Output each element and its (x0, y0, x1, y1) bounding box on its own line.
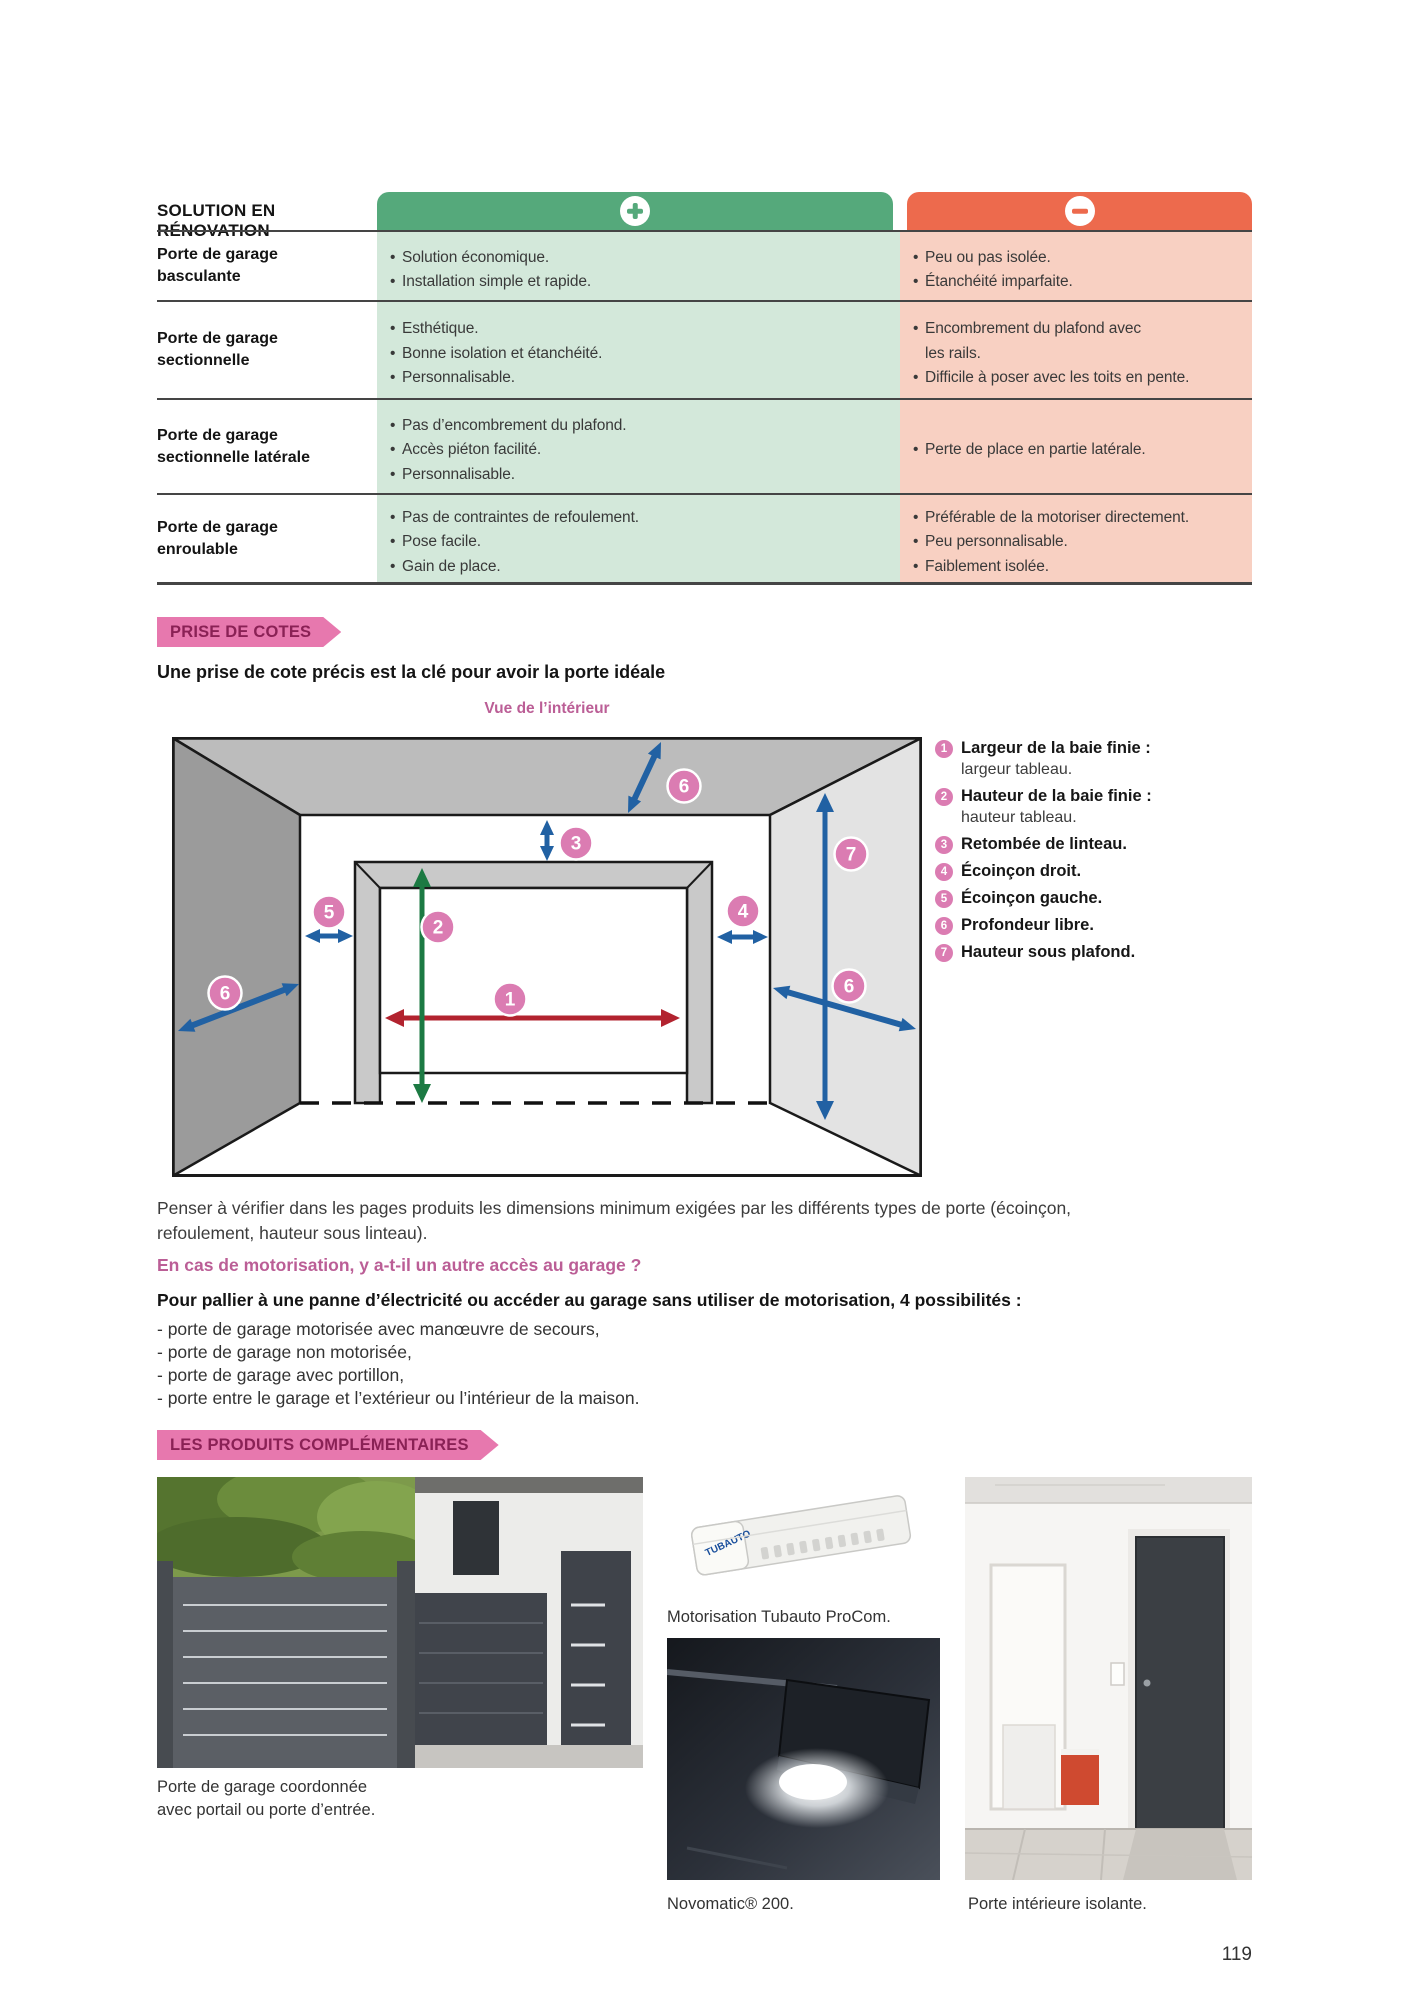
plus-icon (620, 196, 650, 226)
diagram-title: Vue de l’intérieur (172, 700, 922, 718)
caption-tubauto: Motorisation Tubauto ProCom. (667, 1606, 891, 1629)
legend-item: 2 Hauteur de la baie finie :hauteur tabl… (935, 786, 1255, 828)
table-row-label: Porte de garage sectionnelle latérale (157, 398, 377, 493)
svg-text:1: 1 (505, 990, 516, 1011)
marker-1: 1 (494, 983, 527, 1016)
table-cell-pros: Esthétique. Bonne isolation et étanchéit… (377, 300, 900, 398)
table-cell-pros: Pas de contraintes de refoulement. Pose … (377, 493, 900, 585)
list-item: - porte de garage non motorisée, (157, 1341, 639, 1364)
prise-headline: Une prise de cote précis est la clé pour… (157, 662, 665, 683)
marker-4: 4 (727, 895, 760, 928)
pros-tab (377, 192, 893, 230)
marker-2: 2 (422, 911, 455, 944)
red-cabinet (1061, 1753, 1099, 1805)
possibilities-list: - porte de garage motorisée avec manœuvr… (157, 1318, 639, 1410)
legend-item: 3 Retombée de linteau. (935, 834, 1255, 855)
legend-item: 1 Largeur de la baie finie :largeur tabl… (935, 738, 1255, 780)
caption-novomatic: Novomatic® 200. (667, 1893, 794, 1916)
photo-porte-interieure (965, 1477, 1252, 1880)
section-banner-prise-de-cotes: PRISE DE COTES (157, 617, 341, 647)
svg-text:7: 7 (846, 845, 857, 866)
marker-7: 7 (835, 838, 868, 871)
garage-door (415, 1593, 547, 1745)
legend-item: 4 Écoinçon droit. (935, 861, 1255, 882)
marker-3: 3 (560, 827, 593, 860)
svg-text:6: 6 (844, 977, 855, 998)
list-item: - porte entre le garage et l’extérieur o… (157, 1387, 639, 1410)
marker-6-ceiling: 6 (668, 770, 701, 803)
photo-novomatic (667, 1638, 940, 1880)
table-cell-pros: Pas d’encombrement du plafond. Accès pié… (377, 398, 900, 493)
table-cell-cons: Encombrement du plafond avec les rails. … (900, 300, 1252, 398)
svg-text:2: 2 (433, 918, 444, 939)
svg-text:5: 5 (324, 903, 335, 924)
cons-column-header (900, 192, 1252, 230)
page-number: 119 (1222, 1944, 1252, 1966)
marker-6-right: 6 (833, 970, 866, 1003)
motorisation-question: En cas de motorisation, y a-t-il un autr… (157, 1255, 641, 1276)
legend-item: 6 Profondeur libre. (935, 915, 1255, 936)
right-wall (770, 739, 921, 1176)
left-wall (174, 739, 301, 1176)
marker-6-left: 6 (209, 977, 242, 1010)
renovation-solutions-table: SOLUTION EN RÉNOVATION Porte de garage b… (157, 192, 1252, 585)
table-cell-cons: Préférable de la motoriser directement. … (900, 493, 1252, 585)
section-banner-produits: LES PRODUITS COMPLÉMENTAIRES (157, 1430, 499, 1460)
table-row-label: Porte de garage basculante (157, 230, 377, 300)
caption-portail: Porte de garage coordonnée avec portail … (157, 1776, 375, 1822)
table-row-label: Porte de garage enroulable (157, 493, 377, 585)
svg-text:6: 6 (220, 984, 231, 1005)
svg-text:4: 4 (738, 902, 749, 923)
svg-text:3: 3 (571, 834, 582, 855)
table-cell-cons: Peu ou pas isolée. Étanchéité imparfaite… (900, 230, 1252, 300)
photo-motorisation-tubauto: TUBAUTO (667, 1477, 940, 1593)
table-cell-pros: Solution économique. Installation simple… (377, 230, 900, 300)
marker-5: 5 (313, 896, 346, 929)
diagram-legend: 1 Largeur de la baie finie :largeur tabl… (935, 738, 1255, 969)
dimension-note: Penser à vérifier dans les pages produit… (157, 1196, 1071, 1246)
catalog-page: SOLUTION EN RÉNOVATION Porte de garage b… (0, 0, 1428, 2000)
garage-measurement-diagram: 1 2 3 4 5 6 6 6 (172, 737, 922, 1177)
table-row-label: Porte de garage sectionnelle (157, 300, 377, 398)
svg-text:6: 6 (679, 777, 690, 798)
table-cell-cons: Perte de place en partie latérale. (900, 398, 1252, 493)
caption-porte-interieure: Porte intérieure isolante. (968, 1893, 1147, 1916)
cons-tab (907, 192, 1252, 230)
table-title: SOLUTION EN RÉNOVATION (157, 192, 377, 230)
photo-portail-garage (157, 1477, 643, 1768)
pros-column-header (377, 192, 900, 230)
possibilities-intro: Pour pallier à une panne d’électricité o… (157, 1290, 1022, 1311)
legend-item: 7 Hauteur sous plafond. (935, 942, 1255, 963)
list-item: - porte de garage motorisée avec manœuvr… (157, 1318, 639, 1341)
minus-icon (1065, 196, 1095, 226)
legend-item: 5 Écoinçon gauche. (935, 888, 1255, 909)
list-item: - porte de garage avec portillon, (157, 1364, 639, 1387)
